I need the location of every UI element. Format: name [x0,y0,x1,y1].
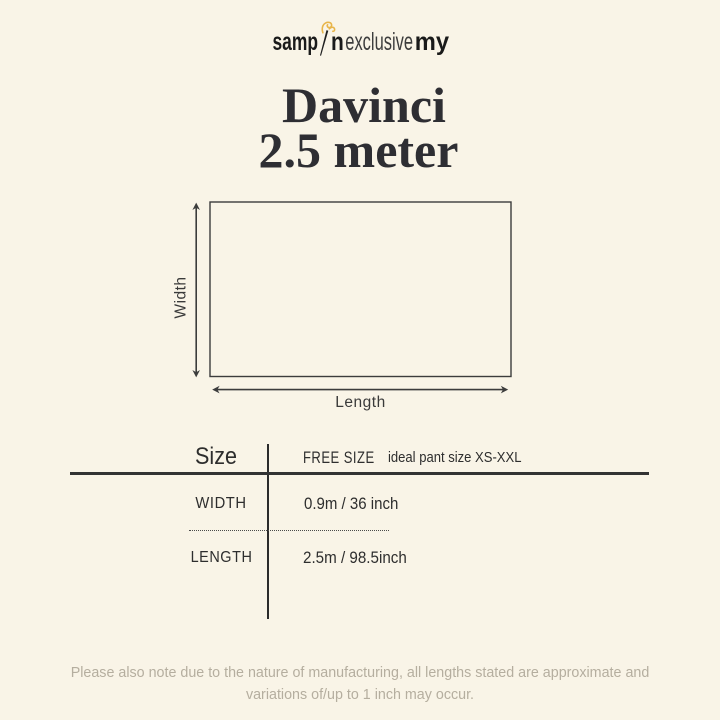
svg-text:my: my [415,28,449,56]
svg-text:samp: samp [273,28,319,56]
svg-text:Length: Length [335,394,385,411]
svg-text:Width: Width [173,276,190,318]
svg-text:exclusive: exclusive [345,28,413,56]
svg-text:n: n [331,28,344,56]
